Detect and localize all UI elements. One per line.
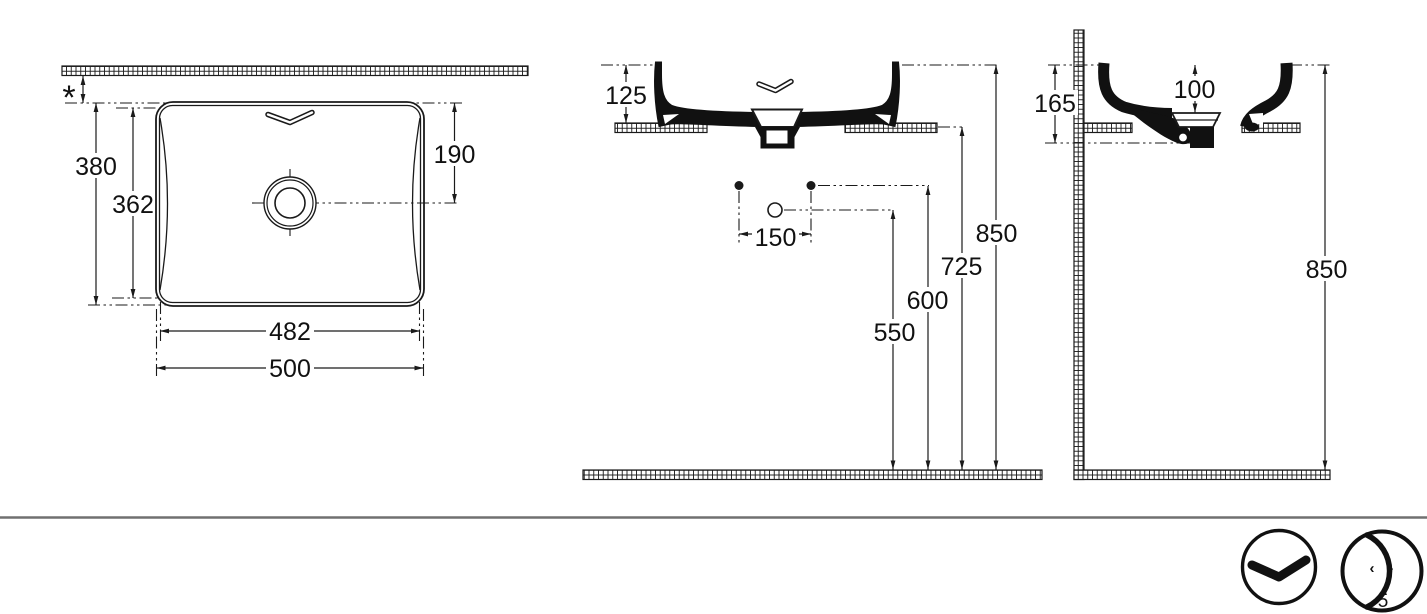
washbasin-dimension-drawing: * 380 362 <box>0 0 1427 614</box>
dim-bowl-depth: 100 <box>1171 65 1218 113</box>
depth-overall-label: 380 <box>75 153 117 181</box>
dim-drain-from-rim: 190 <box>431 103 478 203</box>
height-total-label: 165 <box>1034 90 1076 118</box>
fixing-hole-detail <box>1179 133 1188 142</box>
dim-rim-height: 850 <box>1303 65 1350 470</box>
side-view: 165 100 850 <box>1032 30 1350 480</box>
drain-outlet-height-label: 550 <box>874 319 916 347</box>
drain-from-rim-label: 190 <box>434 141 476 169</box>
drain-window <box>767 131 788 144</box>
badge-right-arrow-glyph: › <box>1389 560 1394 577</box>
right-foot-detail <box>1245 123 1259 132</box>
technical-drawing-sheet: * 380 362 <box>0 0 1427 614</box>
dim-hole-spacing: 150 <box>739 224 811 252</box>
dim-wall-clearance: * <box>62 76 85 117</box>
dim-drain-outlet-height: 550 <box>871 210 918 470</box>
width-overall-label: 500 <box>269 355 311 383</box>
overflow-mark-icon <box>759 82 791 91</box>
crescent-depth-icon: ‹ › 5 <box>1343 532 1422 613</box>
badge-left-arrow-glyph: ‹ <box>1370 560 1375 577</box>
counter-hatch-left <box>1084 123 1132 133</box>
front-view: 125 150 550 <box>583 62 1042 480</box>
dim-width-inner: 482 <box>160 318 420 346</box>
supply-height-label: 600 <box>907 287 949 315</box>
supply-point-right <box>807 181 816 190</box>
width-inner-label: 482 <box>269 318 311 346</box>
badge-number: 5 <box>1378 591 1389 612</box>
floor-hatch <box>1074 470 1330 480</box>
dim-depth-inner: 362 <box>110 108 156 298</box>
rim-height-label: 850 <box>1306 256 1348 284</box>
rim-height-label: 850 <box>976 220 1018 248</box>
height-above-counter-label: 125 <box>605 82 647 110</box>
basin-front-section <box>655 62 900 149</box>
dim-width-overall: 500 <box>157 355 424 383</box>
wave-chevron-icon <box>1243 531 1316 604</box>
supply-point-left <box>735 181 744 190</box>
hole-spacing-label: 150 <box>755 224 797 252</box>
drain-recess <box>752 110 802 128</box>
floor-hatch <box>583 470 1042 480</box>
bowl-depth-label: 100 <box>1174 76 1216 104</box>
left-wall-band <box>1104 63 1172 114</box>
wall-clearance-label: * <box>62 79 75 117</box>
footer-badges: ‹ › 5 <box>1243 531 1422 613</box>
basin-top-outline <box>156 102 459 306</box>
counter-height-label: 725 <box>941 253 983 281</box>
dim-height-above-counter: 125 <box>603 65 649 123</box>
dim-height-total: 165 <box>1032 65 1078 143</box>
depth-inner-label: 362 <box>112 191 154 219</box>
waste-outlet-point <box>768 203 782 217</box>
top-view: * 380 362 <box>62 66 528 383</box>
drain-tailpiece <box>1190 127 1214 148</box>
wall-hatch-strip <box>62 66 528 76</box>
